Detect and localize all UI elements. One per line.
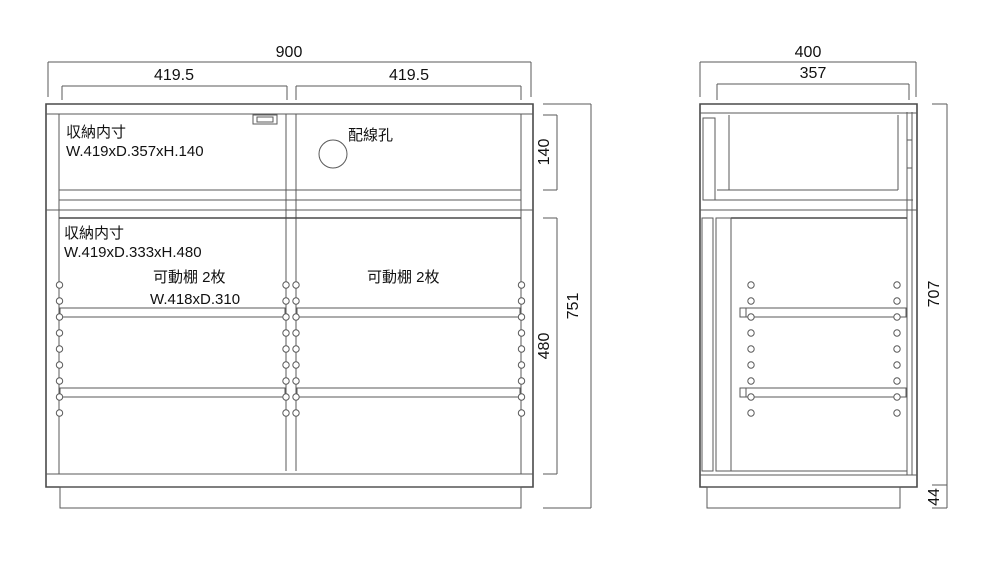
shelf-pin-hole	[283, 410, 289, 416]
shelf-pin-hole	[283, 378, 289, 384]
shelf-pin-hole	[518, 330, 524, 336]
side-back-panel-inner	[716, 218, 731, 471]
wiring-hole-label: 配線孔	[348, 127, 393, 144]
shelf-pin-hole	[56, 330, 62, 336]
side-front-flap-edge	[907, 112, 912, 475]
shelf-pin-hole	[518, 298, 524, 304]
shelf-pin-hole	[293, 346, 299, 352]
shelf-pin-hole	[894, 298, 900, 304]
dim-overall-depth-value: 400	[795, 44, 822, 61]
dim-base-height: 44	[926, 485, 947, 508]
shelf-pin-hole	[894, 394, 900, 400]
top-storage-title: 収納内寸	[66, 124, 126, 141]
shelf-pin-hole	[748, 378, 754, 384]
shelf-pin-hole	[293, 394, 299, 400]
shelf-pin-hole	[293, 330, 299, 336]
shelf-pin-hole	[894, 314, 900, 320]
wiring-hole-icon	[319, 140, 347, 168]
dim-left-section-width: 419.5	[62, 67, 287, 100]
front-shelf-pin-holes	[56, 282, 524, 416]
shelf-pin-hole	[293, 282, 299, 288]
shelf-pin-hole	[283, 362, 289, 368]
dim-bottom-inner-height: 480	[536, 218, 557, 474]
shelf-pin-hole	[894, 282, 900, 288]
shelf-pin-hole	[518, 282, 524, 288]
drawing-svg: 900 419.5 419.5 140 480 751 収納内寸 W.419xD…	[0, 0, 1000, 582]
shelf-pin-hole	[518, 314, 524, 320]
side-back-panel-top	[703, 118, 715, 200]
dim-body-height: 707	[926, 104, 947, 485]
dim-base-height-value: 44	[926, 488, 943, 506]
shelf-pin-hole	[283, 346, 289, 352]
shelf-pin-hole	[283, 314, 289, 320]
side-shelf-pin-holes	[748, 282, 900, 416]
shelf-pin-hole	[518, 362, 524, 368]
shelf-pin-hole	[748, 298, 754, 304]
shelf-pin-hole	[293, 362, 299, 368]
shelf-pin-hole	[283, 394, 289, 400]
shelf-pin-hole	[283, 330, 289, 336]
shelf-pin-hole	[56, 410, 62, 416]
shelf-pin-hole	[56, 346, 62, 352]
shelf-pin-hole	[518, 410, 524, 416]
shelf-pin-hole	[56, 298, 62, 304]
shelf-pin-hole	[283, 282, 289, 288]
front-view: 900 419.5 419.5 140 480 751 収納内寸 W.419xD…	[46, 44, 591, 508]
dim-top-inner-height: 140	[536, 115, 557, 190]
shelf-pin-hole	[56, 362, 62, 368]
shelf-pin-hole	[748, 410, 754, 416]
dim-left-section-width-value: 419.5	[154, 67, 194, 84]
left-shelf-size: W.418xD.310	[150, 291, 240, 308]
shelf-pin-hole	[748, 282, 754, 288]
furniture-dimension-diagram: 900 419.5 419.5 140 480 751 収納内寸 W.419xD…	[0, 0, 1000, 582]
dim-overall-width: 900	[48, 44, 531, 97]
front-carcass	[46, 104, 533, 508]
dim-overall-height-value: 751	[565, 293, 582, 320]
bottom-storage-title: 収納内寸	[64, 225, 124, 242]
shelf-pin-hole	[894, 378, 900, 384]
shelf-pin-hole	[894, 330, 900, 336]
dim-overall-width-value: 900	[276, 44, 303, 61]
left-shelf-label: 可動棚 2枚	[153, 269, 226, 286]
shelf-pin-hole	[293, 378, 299, 384]
top-storage-size: W.419xD.357xH.140	[66, 143, 204, 160]
shelf-pin-hole	[56, 394, 62, 400]
shelf-pin-hole	[748, 346, 754, 352]
shelf-pin-hole	[748, 314, 754, 320]
side-base-plinth	[707, 487, 900, 508]
side-carcass	[700, 104, 917, 508]
bottom-storage-size: W.419xD.333xH.480	[64, 244, 202, 261]
shelf-pin-hole	[56, 314, 62, 320]
dim-body-height-value: 707	[926, 281, 943, 308]
dim-right-section-width: 419.5	[296, 67, 521, 100]
dim-top-inner-height-value: 140	[536, 139, 553, 166]
right-shelf-label: 可動棚 2枚	[367, 269, 440, 286]
dim-bottom-inner-height-value: 480	[536, 333, 553, 360]
shelf-pin-hole	[293, 298, 299, 304]
shelf-pin-hole	[748, 330, 754, 336]
shelf-pin-hole	[518, 394, 524, 400]
shelf-pin-hole	[283, 298, 289, 304]
shelf-pin-hole	[748, 394, 754, 400]
shelf-pin-hole	[748, 362, 754, 368]
shelf-pin-hole	[293, 314, 299, 320]
dim-right-section-width-value: 419.5	[389, 67, 429, 84]
shelf-pin-hole	[56, 282, 62, 288]
latch-icon	[253, 115, 277, 124]
shelf-pin-hole	[56, 378, 62, 384]
dim-inner-depth: 357	[717, 65, 909, 100]
shelf-pin-hole	[894, 362, 900, 368]
side-view: 400 357 707 44	[700, 44, 947, 508]
shelf-pin-hole	[293, 410, 299, 416]
shelf-pin-hole	[518, 346, 524, 352]
front-base-plinth	[60, 487, 521, 508]
shelf-pin-hole	[518, 378, 524, 384]
side-shelves	[740, 308, 906, 397]
shelf-pin-hole	[894, 346, 900, 352]
dim-inner-depth-value: 357	[800, 65, 827, 82]
shelf-pin-hole	[894, 410, 900, 416]
side-back-panel-bottom	[702, 218, 713, 471]
front-shelves	[60, 308, 520, 397]
